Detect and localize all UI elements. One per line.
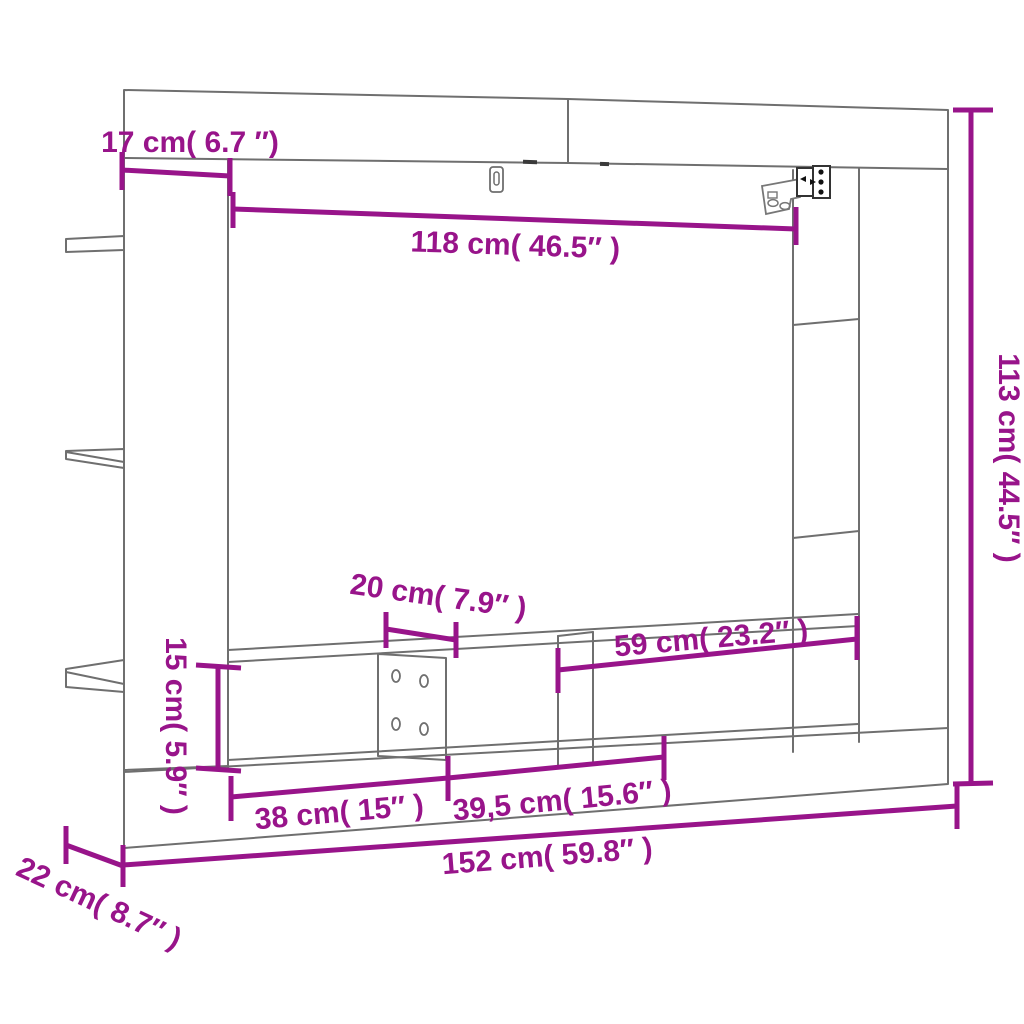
keyhole-slot — [490, 167, 503, 192]
screw-hole — [392, 670, 400, 682]
wall-mount-bracket-icon — [762, 166, 830, 214]
dimension-line-39-5cm — [448, 736, 664, 780]
dimension-lines — [66, 110, 993, 887]
dimension-line-15cm — [196, 665, 241, 771]
label-22cm: 22 cm( 8.7″ ) — [11, 851, 186, 956]
screw-hole — [392, 718, 400, 730]
label-39-5cm: 39,5 cm( 15.6″ ) — [451, 774, 673, 828]
tv-support-panel — [378, 654, 446, 760]
screw-hole — [420, 723, 428, 735]
bracket-screw — [818, 189, 823, 194]
label-118cm: 118 cm( 46.5″ ) — [410, 225, 621, 265]
dimension-line-113cm — [953, 110, 993, 784]
label-38cm: 38 cm( 15″ ) — [253, 789, 425, 837]
dimension-labels: 17 cm( 6.7 ″) 118 cm( 46.5″ ) 113 cm( 44… — [11, 126, 1024, 956]
label-113cm: 113 cm( 44.5″ ) — [992, 353, 1024, 563]
bracket-screw — [818, 169, 823, 174]
bracket-screw — [818, 179, 823, 184]
rail-mark — [523, 160, 537, 164]
bench-divider-top — [558, 632, 593, 636]
dimension-line-22cm — [66, 826, 123, 866]
screw-hole — [420, 675, 428, 687]
label-17cm: 17 cm( 6.7 ″) — [101, 126, 279, 159]
cabinet-outline — [66, 90, 948, 848]
keyhole-slot-inner — [494, 172, 499, 185]
bench-bottom-edge — [124, 728, 948, 772]
dimension-diagram: 17 cm( 6.7 ″) 118 cm( 46.5″ ) 113 cm( 44… — [0, 0, 1024, 1024]
left-exterior-shelf-top — [66, 236, 124, 252]
rail-mark — [600, 162, 609, 166]
label-20cm: 20 cm( 7.9″ ) — [348, 568, 529, 625]
right-shelf-upper — [793, 319, 859, 325]
bench-bottom-front-edge — [228, 724, 858, 760]
label-15cm: 15 cm( 5.9″ ) — [159, 637, 192, 815]
left-exterior-shelf-bottom — [66, 660, 124, 692]
tv-cabinet-drawing: 17 cm( 6.7 ″) 118 cm( 46.5″ ) 113 cm( 44… — [0, 0, 1024, 1024]
right-shelf-lower — [793, 531, 859, 538]
left-exterior-shelf-middle — [66, 449, 124, 468]
